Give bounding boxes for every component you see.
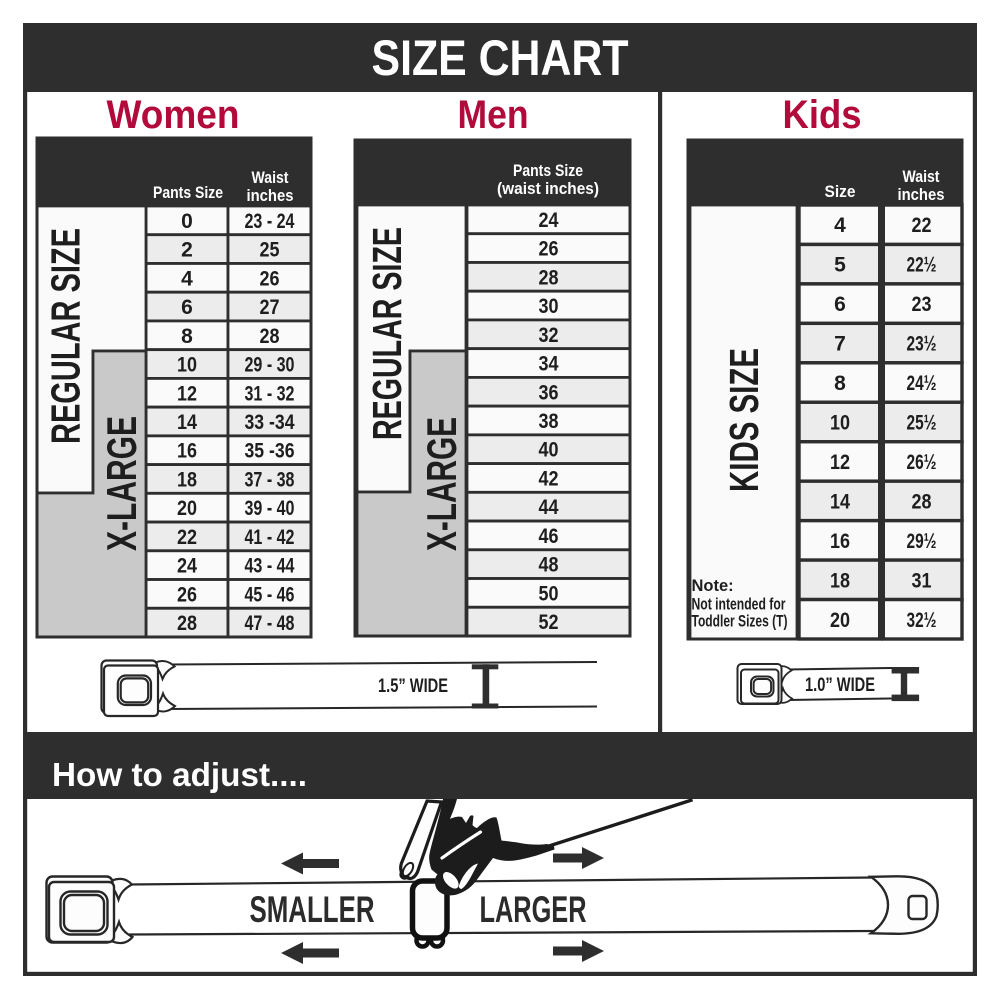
svg-text:10: 10 [177, 354, 197, 377]
svg-text:18: 18 [830, 569, 850, 592]
svg-text:42: 42 [539, 468, 559, 491]
svg-text:41 - 42: 41 - 42 [245, 526, 295, 549]
svg-text:44: 44 [539, 496, 559, 519]
svg-text:2: 2 [181, 239, 193, 262]
svg-text:12: 12 [177, 382, 197, 405]
svg-text:LARGER: LARGER [480, 889, 587, 930]
svg-text:Waist: Waist [252, 168, 289, 187]
svg-text:8: 8 [181, 325, 193, 348]
svg-text:43 - 44: 43 - 44 [245, 555, 295, 578]
svg-text:SMALLER: SMALLER [250, 889, 375, 930]
svg-text:28: 28 [912, 490, 932, 513]
svg-text:X-LARGE: X-LARGE [98, 416, 145, 551]
svg-text:5: 5 [834, 254, 846, 277]
svg-text:Waist: Waist [903, 167, 940, 186]
svg-text:32½: 32½ [907, 609, 937, 632]
svg-text:Pants Size: Pants Size [153, 183, 223, 202]
svg-text:Toddler Sizes (T): Toddler Sizes (T) [692, 613, 788, 631]
svg-text:23½: 23½ [907, 333, 937, 356]
svg-text:12: 12 [830, 451, 850, 474]
svg-text:34: 34 [539, 353, 559, 376]
svg-text:8: 8 [834, 372, 846, 395]
svg-text:29½: 29½ [907, 530, 937, 553]
svg-text:32: 32 [539, 324, 559, 347]
svg-text:22½: 22½ [907, 254, 937, 277]
svg-text:39 - 40: 39 - 40 [245, 497, 295, 520]
svg-text:14: 14 [830, 490, 850, 513]
svg-text:38: 38 [539, 410, 559, 433]
svg-text:28: 28 [260, 325, 280, 348]
svg-text:50: 50 [539, 582, 559, 605]
svg-text:Kids: Kids [783, 93, 862, 137]
svg-text:30: 30 [539, 295, 559, 318]
svg-text:28: 28 [539, 266, 559, 289]
svg-text:1.5” WIDE: 1.5” WIDE [378, 676, 448, 697]
svg-text:1.0” WIDE: 1.0” WIDE [805, 675, 875, 696]
svg-text:29 - 30: 29 - 30 [245, 354, 295, 377]
svg-text:24½: 24½ [907, 372, 937, 395]
svg-text:20: 20 [830, 609, 850, 632]
svg-text:24: 24 [539, 209, 559, 232]
svg-text:22: 22 [912, 214, 932, 237]
svg-text:25: 25 [260, 239, 280, 262]
svg-text:20: 20 [177, 497, 197, 520]
svg-text:How to adjust....: How to adjust.... [52, 756, 307, 793]
svg-text:23: 23 [912, 293, 932, 316]
svg-text:Size: Size [825, 182, 856, 201]
svg-text:6: 6 [181, 296, 193, 319]
svg-text:10: 10 [830, 412, 850, 435]
svg-text:inches: inches [247, 186, 294, 205]
svg-text:37 - 38: 37 - 38 [245, 469, 295, 492]
svg-text:47 - 48: 47 - 48 [245, 612, 295, 635]
svg-text:4: 4 [834, 214, 846, 237]
svg-text:X-LARGE: X-LARGE [418, 417, 465, 551]
svg-text:26: 26 [177, 583, 197, 606]
svg-text:23 - 24: 23 - 24 [245, 210, 295, 233]
svg-text:26: 26 [539, 238, 559, 261]
svg-text:24: 24 [177, 555, 197, 578]
svg-text:28: 28 [177, 612, 197, 635]
svg-text:22: 22 [177, 526, 197, 549]
svg-text:33 -34: 33 -34 [245, 411, 295, 434]
svg-text:Women: Women [107, 93, 240, 137]
svg-text:46: 46 [539, 525, 559, 548]
svg-text:31 - 32: 31 - 32 [245, 382, 295, 405]
svg-text:52: 52 [539, 611, 559, 634]
svg-text:REGULAR SIZE: REGULAR SIZE [364, 227, 410, 440]
svg-text:(waist inches): (waist inches) [497, 179, 599, 198]
svg-text:45 - 46: 45 - 46 [245, 583, 295, 606]
svg-text:40: 40 [539, 439, 559, 462]
svg-text:Note:: Note: [692, 577, 734, 595]
svg-text:35 -36: 35 -36 [245, 440, 295, 463]
svg-text:27: 27 [260, 296, 280, 319]
svg-text:14: 14 [177, 411, 197, 434]
svg-text:6: 6 [834, 293, 846, 316]
svg-text:7: 7 [834, 333, 846, 356]
svg-text:4: 4 [181, 267, 193, 290]
svg-text:0: 0 [181, 210, 193, 233]
svg-text:SIZE CHART: SIZE CHART [372, 30, 629, 86]
svg-text:KIDS SIZE: KIDS SIZE [721, 348, 767, 492]
svg-text:16: 16 [830, 530, 850, 553]
svg-text:Men: Men [458, 93, 529, 137]
svg-text:26: 26 [260, 267, 280, 290]
svg-text:inches: inches [898, 185, 945, 204]
svg-text:Not intended for: Not intended for [692, 596, 786, 614]
svg-text:REGULAR SIZE: REGULAR SIZE [43, 228, 89, 444]
svg-text:25½: 25½ [907, 412, 937, 435]
svg-text:16: 16 [177, 440, 197, 463]
svg-text:48: 48 [539, 554, 559, 577]
svg-text:Pants Size: Pants Size [513, 161, 583, 180]
svg-text:36: 36 [539, 381, 559, 404]
svg-text:26½: 26½ [907, 451, 937, 474]
svg-text:31: 31 [912, 569, 932, 592]
svg-text:18: 18 [177, 469, 197, 492]
